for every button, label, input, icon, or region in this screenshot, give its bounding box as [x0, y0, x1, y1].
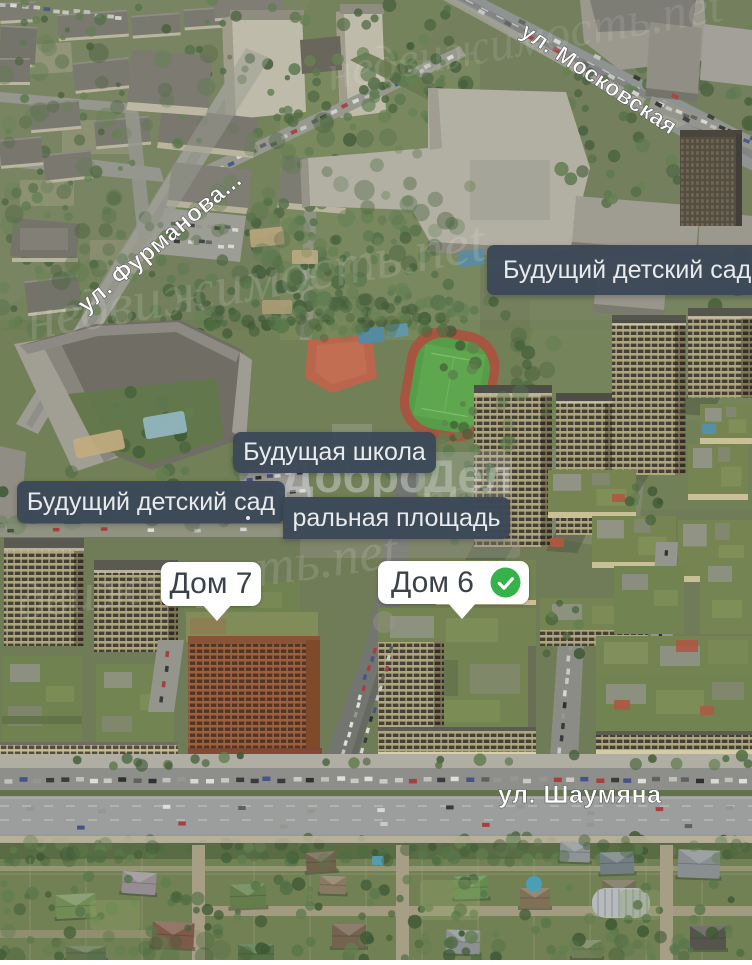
- svg-text:ул. Шаумяна: ул. Шаумяна: [498, 781, 662, 809]
- svg-text:Дел: Дел: [424, 450, 512, 502]
